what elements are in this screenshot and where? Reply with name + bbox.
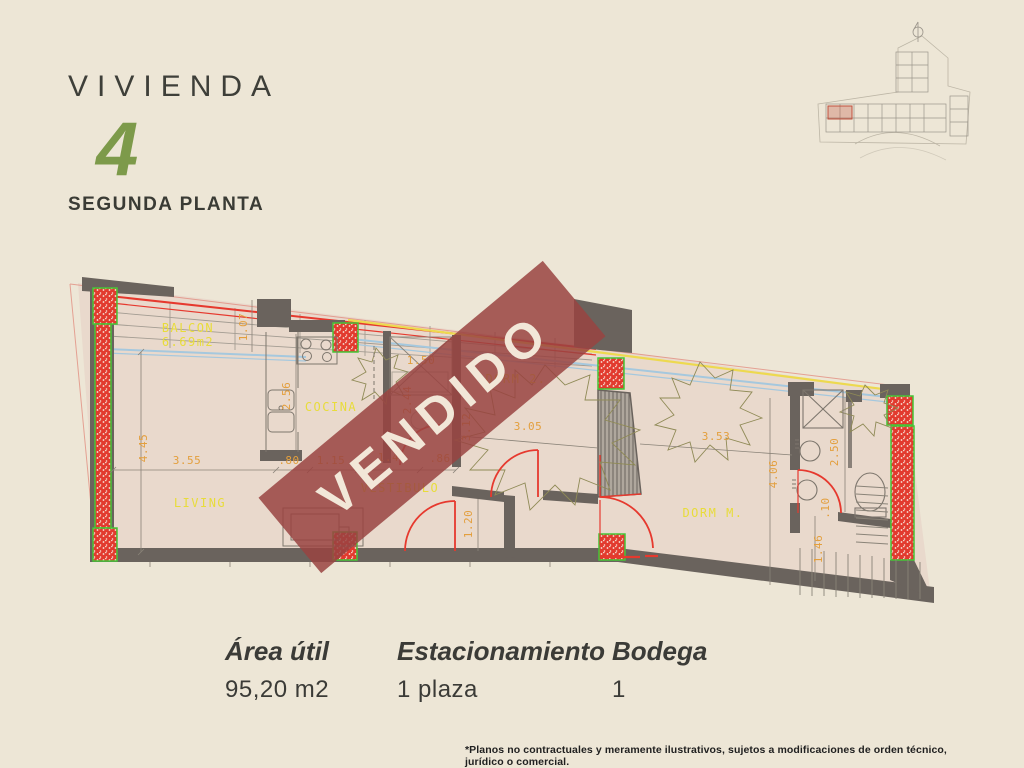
info-parking-label: Estacionamiento xyxy=(397,636,605,667)
dim-dormm-height: 4.06 xyxy=(767,460,780,489)
disclaimer: *Planos no contractuales y meramente ilu… xyxy=(465,744,975,768)
room-label-cocina: COCINA xyxy=(305,400,357,414)
info-area-label: Área útil xyxy=(225,636,329,667)
dim-kitchen-depth: 2.56 xyxy=(280,382,293,411)
dim-stair-width: 1.46 xyxy=(812,535,825,564)
info-parking: Estacionamiento 1 plaza xyxy=(397,636,605,704)
info-area-value: 95,20 m2 xyxy=(225,676,329,704)
room-label-balcon-area: 6.69m2 xyxy=(162,335,214,349)
room-label-dormm: DORM M. xyxy=(682,506,743,520)
info-storage-label: Bodega xyxy=(612,636,707,667)
dim-dorm2-width: 3.05 xyxy=(514,420,543,433)
dim-balcony-depth: 1.07 xyxy=(237,313,250,342)
dim-gap: .10 xyxy=(819,497,832,518)
dim-vestibulo-height: 1.20 xyxy=(462,510,475,539)
dim-bath2-width: 2.50 xyxy=(828,438,841,467)
info-storage: Bodega 1 xyxy=(612,636,707,704)
room-label-balcon: BALCON xyxy=(162,321,214,335)
info-storage-value: 1 xyxy=(612,676,707,704)
dim-dormm-width: 3.53 xyxy=(702,430,731,443)
dim-living-height: 4.45 xyxy=(137,434,150,463)
page: VIVIENDA 4 SEGUNDA PLANTA xyxy=(0,0,1024,766)
room-label-living: LIVING xyxy=(174,496,226,510)
dim-living-width: 3.55 xyxy=(173,454,202,467)
info-area: Área útil 95,20 m2 xyxy=(225,636,329,704)
info-parking-value: 1 plaza xyxy=(397,676,605,704)
